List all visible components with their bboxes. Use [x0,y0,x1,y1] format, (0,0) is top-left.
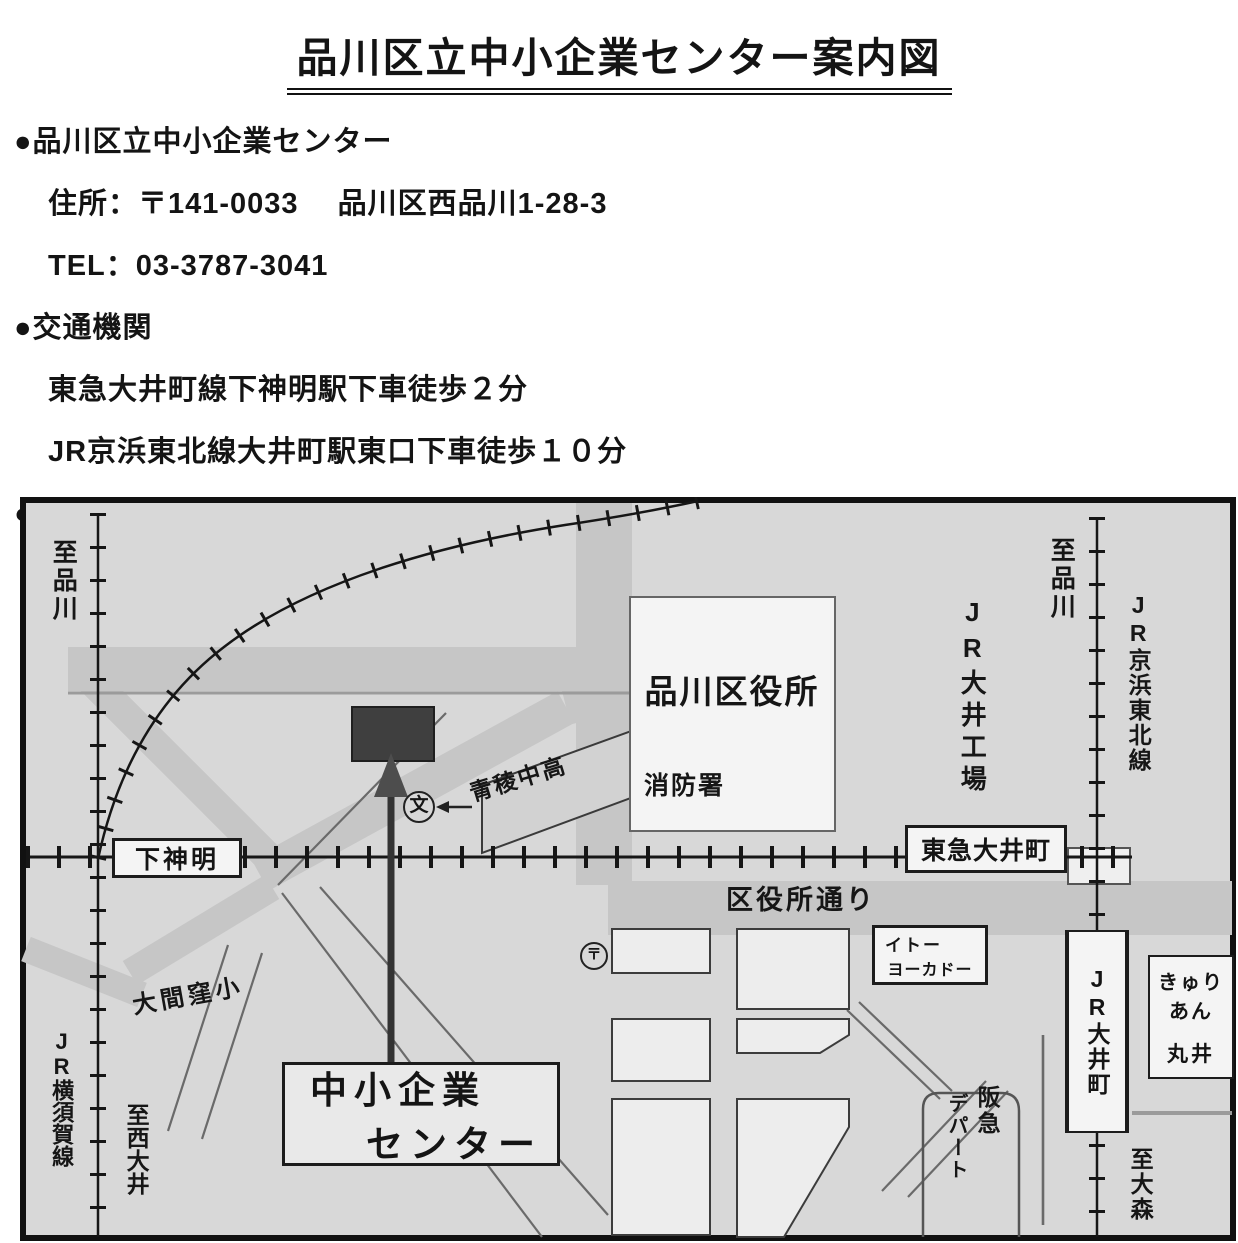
label-jr-yokosuka-line: JR横須賀線 [50,1029,73,1167]
label-hankyu: 阪急 [975,1085,999,1137]
label-hankyu-depato: デパート [945,1093,966,1181]
label-kuyakusho-dori: 区役所通り [726,886,876,914]
area-map: 至品川 JR横須賀線 至西大井 下神明 大間窪小 中小企業 センター 青稜中高 … [20,497,1236,1241]
shimo-shinmei-station-box: 下神明 [112,838,242,878]
label-to-shinagawa-left: 至品川 [50,539,76,623]
page-title: 品川区立中小企業センター案内図 [0,24,1238,95]
ito-yokado-line1: イトー [885,931,942,956]
school-symbol: 文 [409,796,429,816]
ito-yokado-box: イトー ヨーカドー [872,925,988,985]
page-title-text: 品川区立中小企業センター案内図 [287,24,952,95]
label-fire-station: 消防署 [644,773,725,799]
info-line-address: 住所：〒141-0033 品川区西品川1-28-3 [14,180,1114,222]
station-platform-block [1068,848,1130,884]
ito-yokado-line2: ヨーカドー [887,956,972,980]
curian-line1: きゅり [1158,966,1224,995]
label-jr-oi-factory: JR大井工場 [958,597,985,797]
info-line-jr-access: JR京浜東北線大井町駅東口下車徒歩１０分 [14,428,1114,470]
info-line-transport-heading: ●交通機関 [14,304,1114,346]
info-text-block: ●品川区立中小企業センター 住所：〒141-0033 品川区西品川1-28-3 … [14,118,1114,552]
sme-center-label-line2: センター [366,1114,542,1168]
tokyu-oimachi-station-box: 東急大井町 [905,825,1067,873]
curian-marui-box: きゅり あん 丸井 [1148,955,1234,1079]
info-line-tel: TEL：03-3787-3041 [14,242,1114,284]
info-line-tokyu-access: 東急大井町線下神明駅下車徒歩２分 [14,366,1114,408]
jr-oimachi-station-box: JR大井町 [1065,930,1129,1133]
label-shinagawa-ward-office: 品川区役所 [632,675,832,710]
label-jr-keihin-tohoku-line: JR京浜東北線 [1126,592,1150,773]
label-to-nishi-oi: 至西大井 [124,1103,148,1195]
post-office-symbol: 〒 [584,947,604,963]
label-jr-oimachi-station: JR大井町 [1080,966,1114,1097]
label-marui: 丸井 [1167,1038,1215,1068]
info-line-center-heading: ●品川区立中小企業センター [14,118,1114,160]
label-to-omori: 至大森 [1128,1147,1152,1222]
label-to-shinagawa-right: 至品川 [1048,537,1074,621]
sme-center-building [352,707,434,761]
curian-line2: あん [1169,995,1213,1024]
sme-center-label-box: 中小企業 センター [282,1062,560,1166]
sme-center-label-line1: 中小企業 [310,1060,486,1114]
